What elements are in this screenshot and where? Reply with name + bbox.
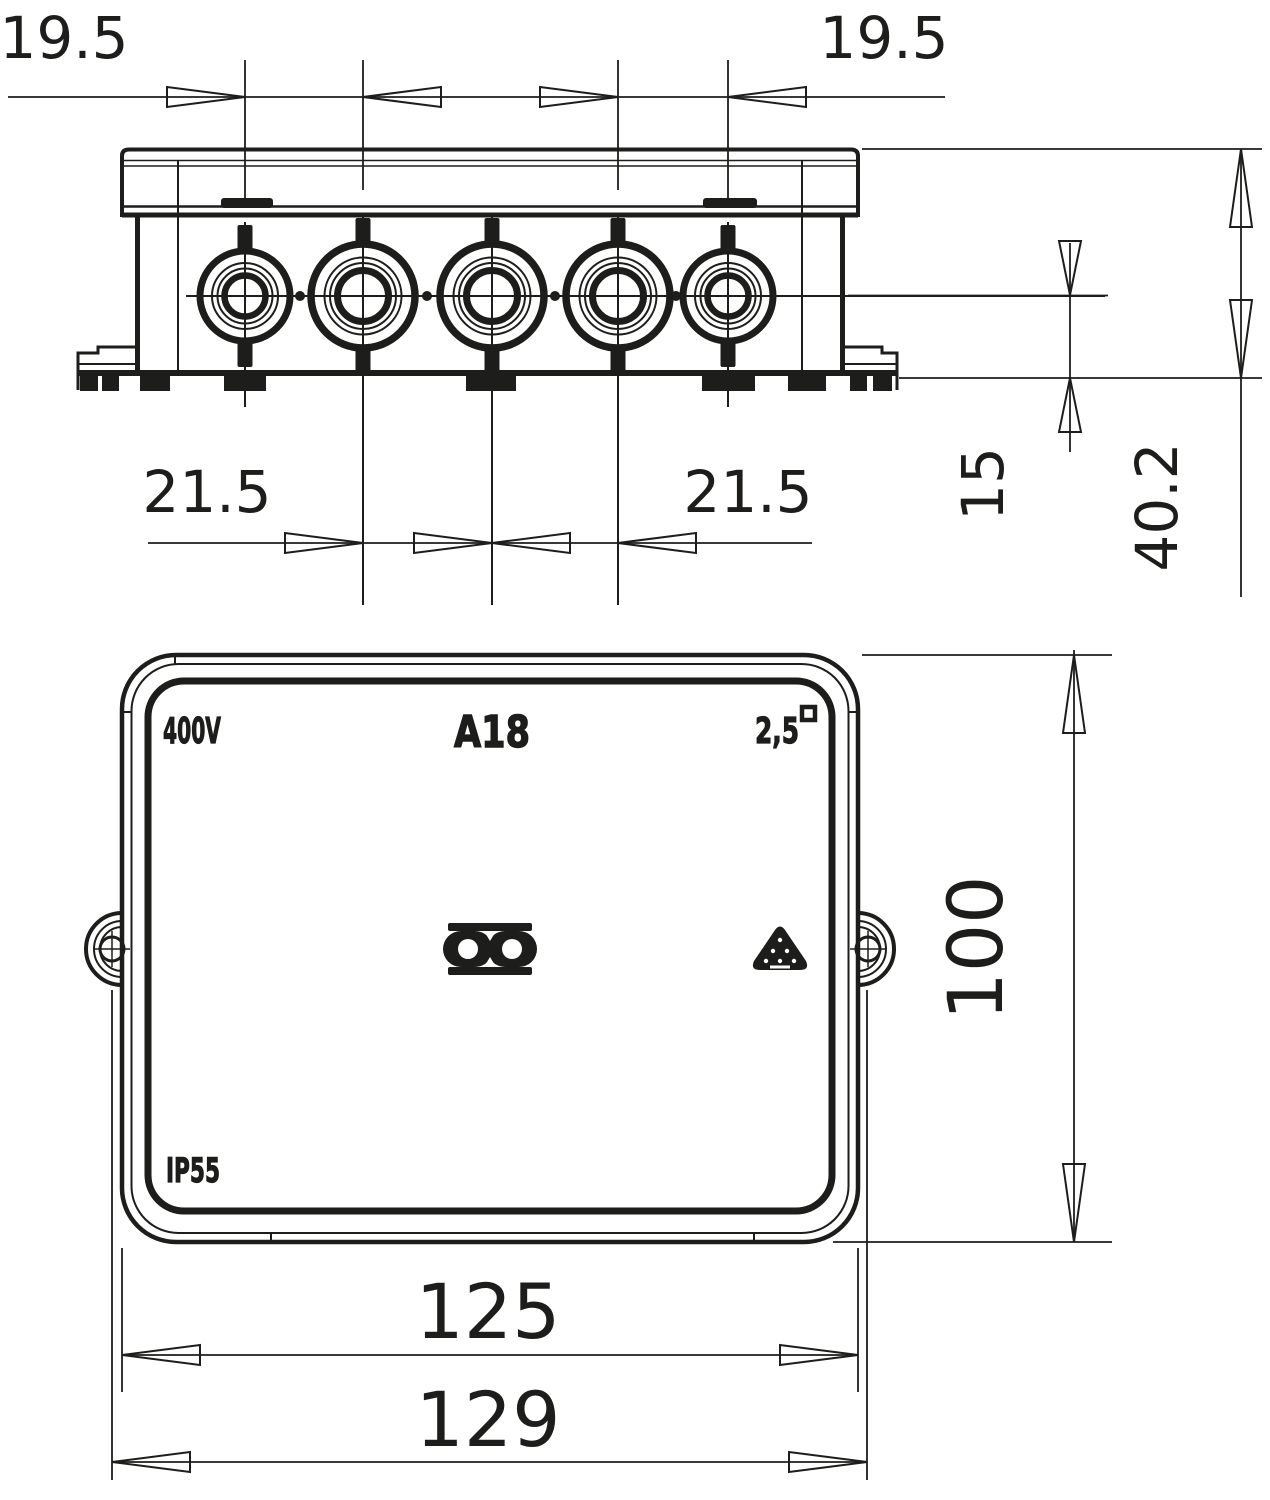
grommet-connector bbox=[422, 291, 432, 301]
dim-grommet-spacing-bottom-left: 21.5 bbox=[142, 458, 271, 526]
dim-overall-width: 129 bbox=[415, 1375, 560, 1464]
side-view-dimensions: 19.5 19.5 21.5 21.5 15 40.2 bbox=[0, 4, 1262, 597]
grommet-connector bbox=[295, 291, 305, 301]
cable-grommet bbox=[311, 215, 415, 605]
dim-body-width: 125 bbox=[415, 1267, 560, 1356]
conductor-square-icon bbox=[802, 707, 815, 720]
cable-grommet bbox=[200, 222, 290, 407]
front-view-dimensions: 100 125 129 bbox=[112, 650, 1112, 1480]
front-view: 400V A18 2,5 IP55 bbox=[86, 655, 894, 1242]
label-model: A18 bbox=[454, 707, 530, 758]
base-feet bbox=[80, 375, 892, 391]
lid-clip-tab bbox=[221, 198, 273, 208]
cable-grommet bbox=[566, 215, 670, 605]
lid-clip-tab bbox=[703, 198, 757, 208]
cable-grommet bbox=[440, 215, 544, 605]
grommet-connector bbox=[550, 291, 560, 301]
dim-base-to-entry-center: 15 bbox=[949, 447, 1017, 521]
cable-grommet bbox=[683, 222, 773, 407]
recycling-triangle-icon bbox=[753, 927, 807, 971]
dim-grommet-spacing-top-left: 19.5 bbox=[0, 4, 129, 72]
junction-box-technical-drawing: 19.5 19.5 21.5 21.5 15 40.2 bbox=[0, 0, 1270, 1500]
label-voltage: 400V bbox=[163, 711, 221, 752]
label-ip-rating: IP55 bbox=[166, 1151, 220, 1191]
label-conductor-size: 2,5 bbox=[755, 711, 799, 752]
dim-grommet-spacing-top-right: 19.5 bbox=[819, 4, 948, 72]
dim-overall-height: 40.2 bbox=[1123, 442, 1191, 571]
dim-body-height: 100 bbox=[931, 875, 1020, 1020]
drawing-canvas: 19.5 19.5 21.5 21.5 15 40.2 bbox=[0, 0, 1270, 1500]
dim-grommet-spacing-bottom-right: 21.5 bbox=[683, 458, 812, 526]
grommet-connector bbox=[671, 291, 681, 301]
obo-logo-icon bbox=[443, 923, 537, 975]
